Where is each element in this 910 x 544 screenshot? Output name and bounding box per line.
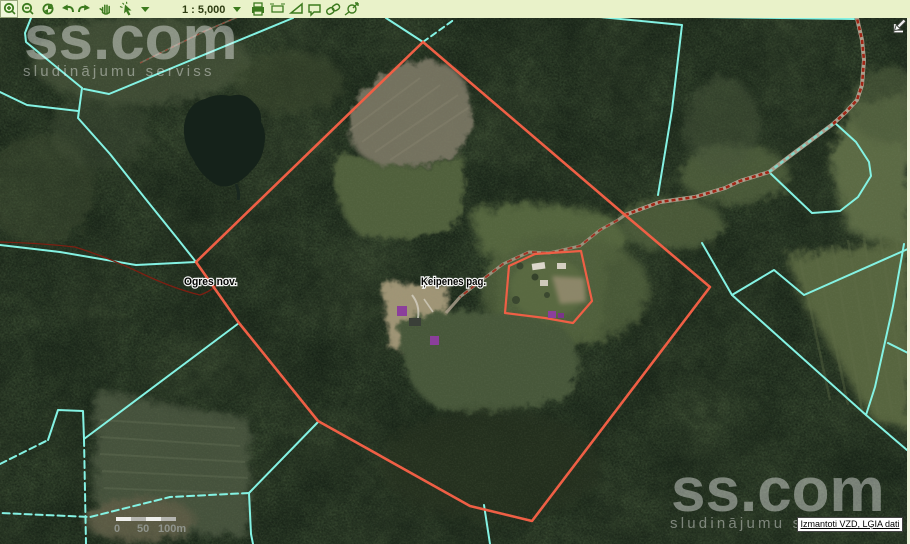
svg-text:50: 50	[137, 523, 149, 535]
svg-text:0: 0	[114, 523, 120, 535]
svg-text:100m: 100m	[158, 523, 186, 535]
svg-text:Ogres nov.: Ogres nov.	[184, 276, 237, 288]
svg-text:1 : 5,000: 1 : 5,000	[182, 4, 225, 16]
svg-text:Ķeipenes pag.: Ķeipenes pag.	[421, 276, 486, 288]
svg-text:sludinājumu serviss: sludinājumu serviss	[23, 63, 215, 80]
